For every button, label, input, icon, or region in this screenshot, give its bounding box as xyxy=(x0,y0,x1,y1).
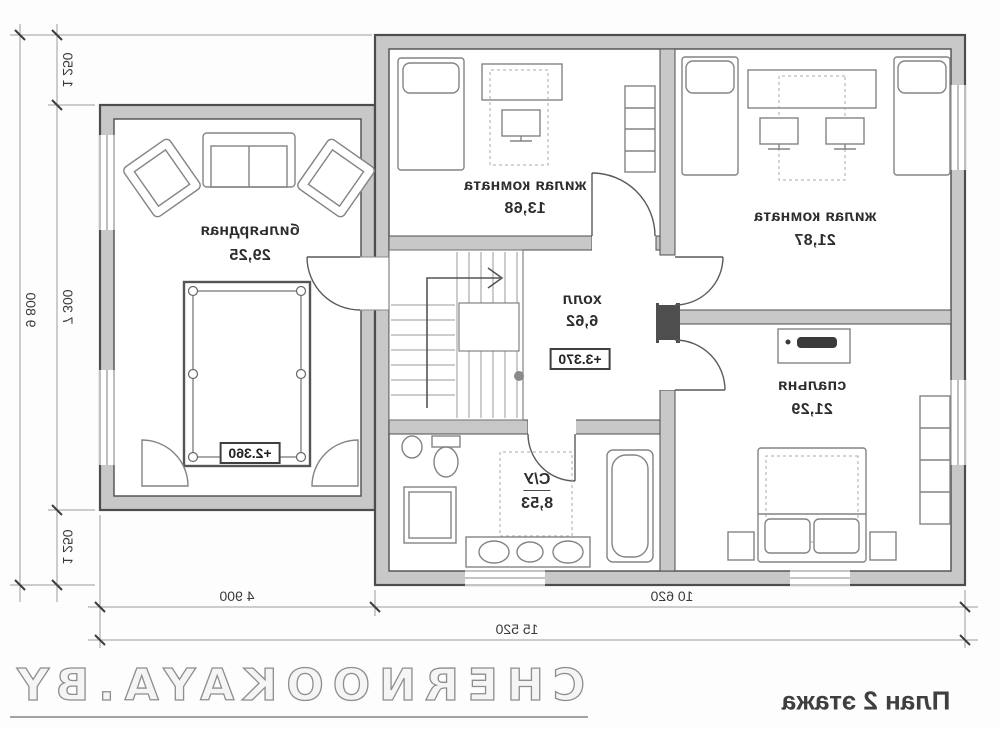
room-billiard-name: бильярдная xyxy=(200,222,299,240)
floor-plan-canvas: жилая комната 13,68 жилая комната 21,87 … xyxy=(0,0,1000,729)
watermark-underline xyxy=(10,716,588,718)
pillow xyxy=(814,519,859,553)
toilet xyxy=(432,436,460,447)
room-bathroom-area: 8,53 xyxy=(521,495,553,513)
dim-total-height: 9 800 xyxy=(23,292,39,327)
hall-level-badge: +3.370 xyxy=(549,348,610,370)
dim-height-seg-bottom: 1 250 xyxy=(60,529,76,564)
room-living2-name: жилая комната xyxy=(754,208,876,226)
nightstand xyxy=(870,532,896,560)
dim-annex-width: 4 900 xyxy=(219,588,254,604)
bathtub xyxy=(607,450,653,562)
room-living2-area: 21,87 xyxy=(794,232,836,250)
corner-sink xyxy=(402,436,422,458)
staircase xyxy=(389,250,524,420)
bed xyxy=(398,58,464,170)
monitor-icon xyxy=(502,110,540,136)
washer xyxy=(404,487,456,543)
dim-height-seg-top: 1 250 xyxy=(60,52,76,87)
room-bathroom-name: С/У xyxy=(524,471,551,491)
plan-title: План 2 этажа xyxy=(782,686,951,717)
watermark-text: CHERNOOKAYA.BY xyxy=(10,660,585,711)
monitor-icon xyxy=(826,118,864,144)
room-living1-name: жилая комната xyxy=(464,177,586,195)
dim-height-seg-middle: 7 300 xyxy=(60,289,76,324)
plan-drawing xyxy=(0,0,1000,729)
monitor-icon xyxy=(760,118,798,144)
room-billiard-area: 29,25 xyxy=(229,247,271,265)
room-bedroom-name: спальня xyxy=(778,377,847,395)
room-hall-area: 6,62 xyxy=(566,313,598,331)
pillow xyxy=(765,519,810,553)
desk xyxy=(482,64,562,100)
room-bedroom-area: 21,29 xyxy=(791,401,833,419)
dim-total-width: 15 520 xyxy=(496,621,539,637)
bed xyxy=(894,57,950,175)
dim-main-width: 10 620 xyxy=(651,588,694,604)
billiard-level-badge: +2.360 xyxy=(219,442,280,464)
mirrored-plan-wrapper: жилая комната 13,68 жилая комната 21,87 … xyxy=(0,0,1000,729)
bed xyxy=(682,57,738,175)
room-hall-name: холл xyxy=(562,291,601,309)
nightstand xyxy=(728,532,754,560)
room-living1-area: 13,68 xyxy=(504,200,546,218)
tv-icon xyxy=(797,337,837,348)
